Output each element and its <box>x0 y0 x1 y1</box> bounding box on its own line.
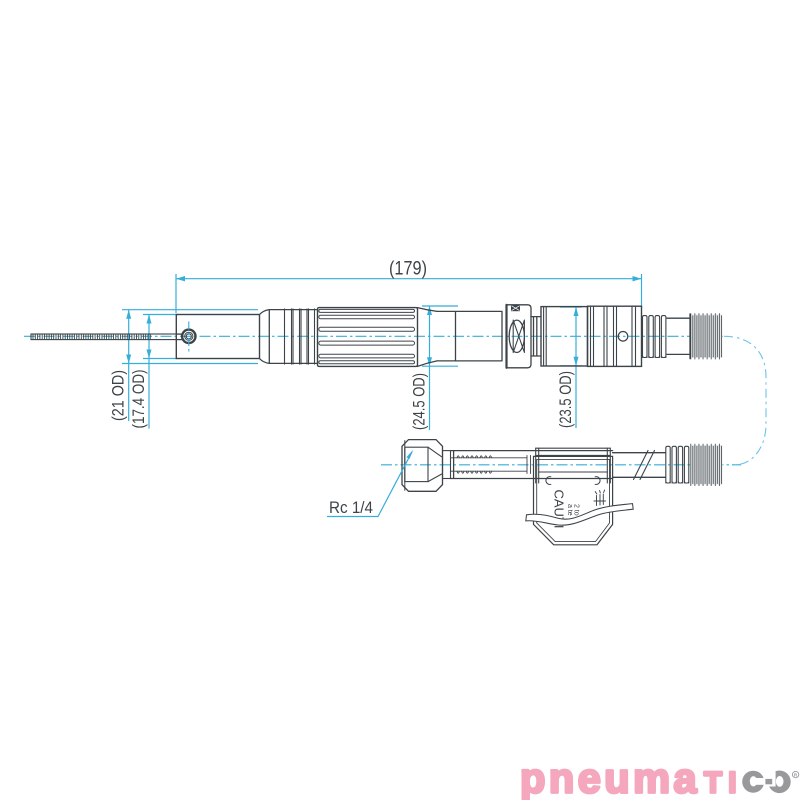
svg-text:2 to: 2 to <box>573 504 580 516</box>
svg-text:Rc 1/4: Rc 1/4 <box>329 498 373 517</box>
svg-text:pneuma: pneuma <box>520 755 700 801</box>
svg-text:(179): (179) <box>389 259 427 280</box>
svg-text:(21 OD): (21 OD) <box>109 370 128 421</box>
svg-text:(23.5 OD): (23.5 OD) <box>556 371 575 428</box>
svg-text:(17.4 OD): (17.4 OD) <box>129 370 148 429</box>
svg-text:TI: TI <box>704 767 743 800</box>
svg-text:(24.5 OD): (24.5 OD) <box>409 373 428 430</box>
svg-text:a te: a te <box>566 504 573 516</box>
